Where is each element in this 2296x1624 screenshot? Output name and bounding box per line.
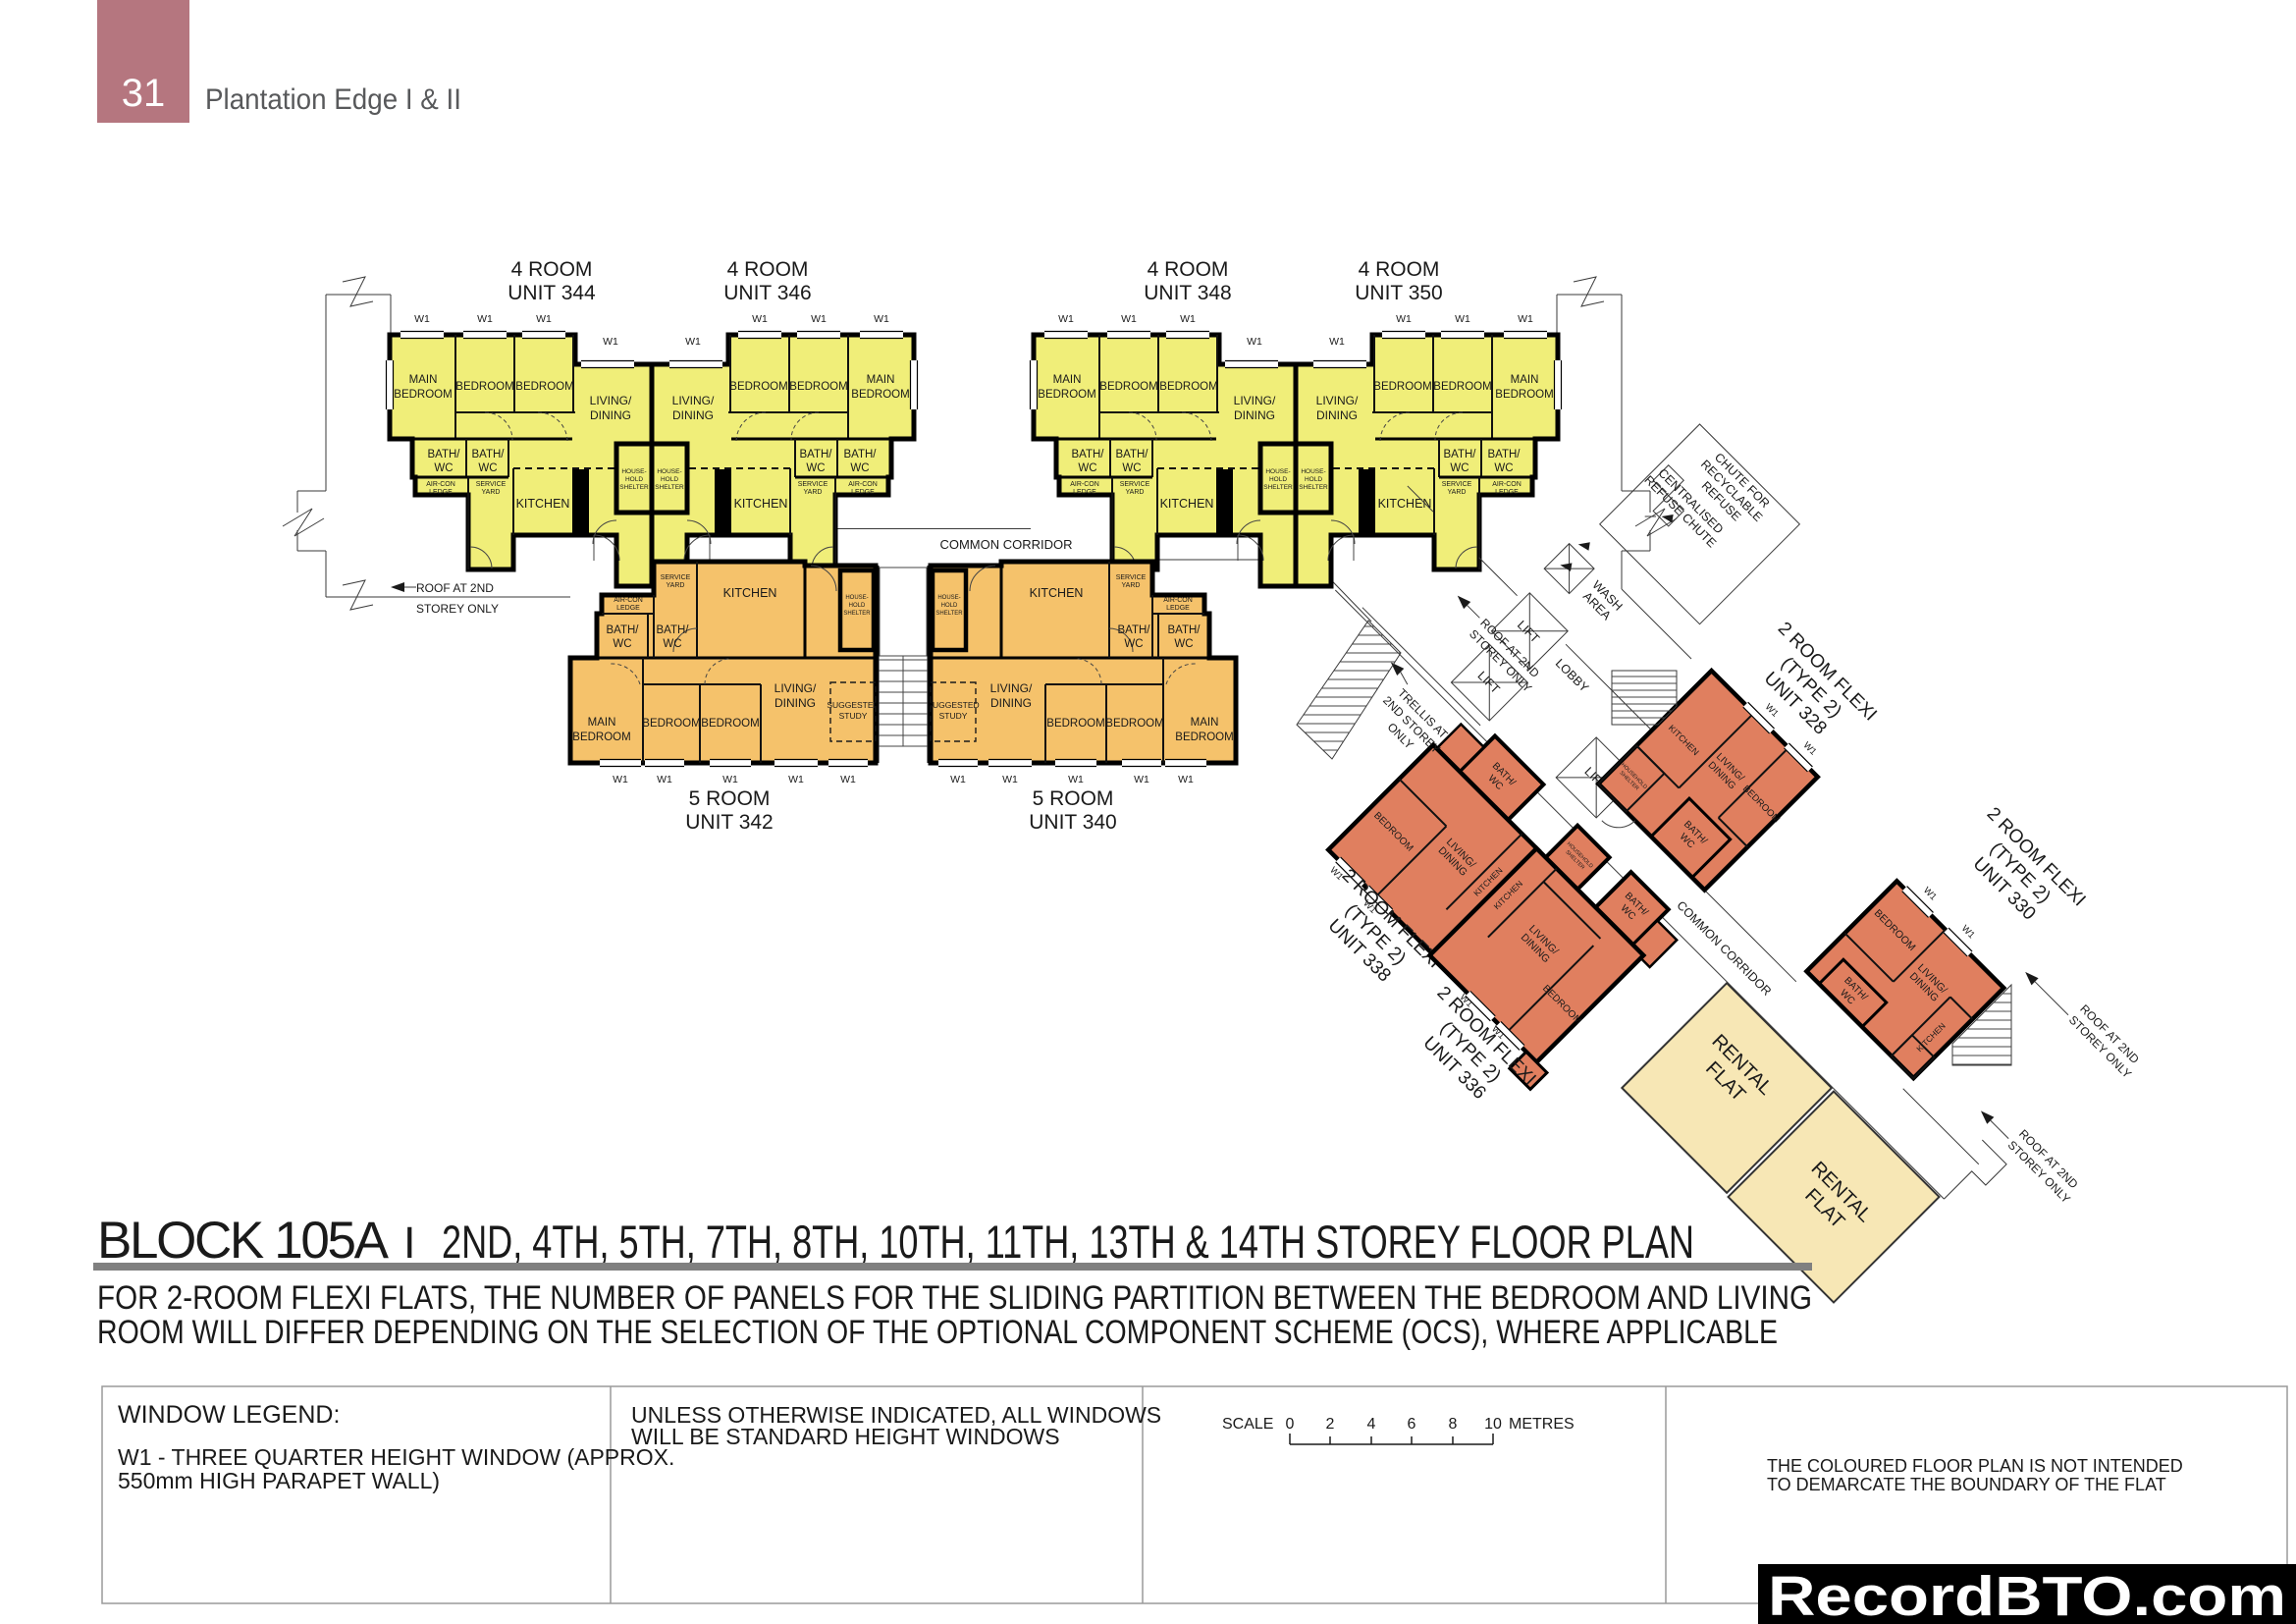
svg-text:5 ROOM: 5 ROOM	[689, 787, 771, 810]
svg-text:SERVICE: SERVICE	[476, 481, 507, 488]
svg-text:MAIN: MAIN	[409, 374, 438, 386]
svg-text:WC: WC	[806, 462, 825, 474]
svg-text:LIVING/: LIVING/	[990, 681, 1033, 695]
svg-text:WC: WC	[478, 462, 497, 474]
svg-text:BATH/: BATH/	[606, 624, 639, 636]
svg-text:BEDROOM: BEDROOM	[515, 381, 573, 393]
svg-text:W1: W1	[811, 313, 827, 325]
svg-text:KITCHEN: KITCHEN	[1160, 497, 1214, 511]
svg-text:W1: W1	[1247, 336, 1262, 348]
svg-text:BATH/: BATH/	[1487, 449, 1521, 460]
svg-text:I: I	[403, 1218, 416, 1268]
svg-text:DINING: DINING	[590, 408, 631, 422]
svg-text:WILL BE STANDARD HEIGHT WINDOW: WILL BE STANDARD HEIGHT WINDOWS	[631, 1424, 1060, 1449]
svg-text:4 ROOM: 4 ROOM	[511, 258, 593, 281]
svg-text:YARD: YARD	[804, 489, 823, 496]
svg-text:KITCHEN: KITCHEN	[516, 497, 570, 511]
svg-text:HOUSE-: HOUSE-	[937, 595, 960, 601]
svg-text:W1: W1	[1396, 313, 1412, 325]
svg-text:SUGGESTED: SUGGESTED	[927, 700, 979, 710]
svg-text:BEDROOM: BEDROOM	[1373, 381, 1431, 393]
svg-text:LEDGE: LEDGE	[429, 489, 453, 496]
svg-text:STOREY ONLY: STOREY ONLY	[416, 602, 499, 616]
svg-text:MAIN: MAIN	[1053, 374, 1082, 386]
svg-text:W1: W1	[536, 313, 552, 325]
svg-text:DINING: DINING	[1234, 408, 1275, 422]
svg-text:W1: W1	[840, 774, 856, 785]
svg-text:KITCHEN: KITCHEN	[1378, 497, 1432, 511]
svg-text:W1: W1	[1455, 313, 1470, 325]
svg-text:KITCHEN: KITCHEN	[723, 586, 777, 600]
svg-text:WC: WC	[1174, 638, 1193, 650]
svg-text:RecordBTO.com: RecordBTO.com	[1768, 1565, 2286, 1624]
svg-text:LEDGE: LEDGE	[1495, 489, 1519, 496]
svg-text:W1: W1	[414, 313, 430, 325]
svg-text:THE COLOURED FLOOR PLAN IS NOT: THE COLOURED FLOOR PLAN IS NOT INTENDED	[1767, 1456, 2183, 1476]
svg-text:WC: WC	[1450, 462, 1468, 474]
svg-text:SERVICE: SERVICE	[798, 481, 828, 488]
svg-text:W1: W1	[1329, 336, 1345, 348]
svg-text:DINING: DINING	[990, 696, 1032, 710]
svg-text:ROOM WILL DIFFER DEPENDING ON: ROOM WILL DIFFER DEPENDING ON THE SELECT…	[97, 1314, 1778, 1351]
svg-text:WC: WC	[613, 638, 631, 650]
svg-text:AIR-CON: AIR-CON	[1070, 481, 1099, 488]
svg-text:HOLD: HOLD	[1269, 476, 1287, 483]
svg-text:WC: WC	[1494, 462, 1513, 474]
svg-text:HOUSE-: HOUSE-	[1265, 468, 1290, 475]
svg-text:LEDGE: LEDGE	[1166, 605, 1190, 612]
svg-text:WC: WC	[663, 638, 681, 650]
svg-text:SHELTER: SHELTER	[1299, 484, 1328, 491]
svg-text:UNIT 346: UNIT 346	[723, 282, 812, 304]
svg-text:W1 - THREE QUARTER HEIGHT WI: W1 - THREE QUARTER HEIGHT WINDOW (APPROX…	[118, 1444, 674, 1470]
svg-text:SERVICE: SERVICE	[1120, 481, 1150, 488]
svg-text:UNIT 344: UNIT 344	[507, 282, 596, 304]
svg-text:HOLD: HOLD	[625, 476, 643, 483]
svg-text:AIR-CON: AIR-CON	[426, 481, 455, 488]
svg-text:FOR 2-ROOM FLEXI FLATS, THE NU: FOR 2-ROOM FLEXI FLATS, THE NUMBER OF PA…	[97, 1279, 1812, 1317]
svg-text:BEDROOM: BEDROOM	[789, 381, 847, 393]
svg-text:W1: W1	[1068, 774, 1084, 785]
svg-text:BEDROOM: BEDROOM	[729, 381, 787, 393]
svg-text:W1: W1	[788, 774, 804, 785]
svg-text:BEDROOM: BEDROOM	[1105, 718, 1163, 730]
svg-text:BLOCK 105A: BLOCK 105A	[97, 1212, 390, 1270]
svg-text:WC: WC	[1124, 638, 1143, 650]
svg-text:BEDROOM: BEDROOM	[851, 389, 909, 401]
svg-text:SHELTER: SHELTER	[1263, 484, 1293, 491]
svg-text:5 ROOM: 5 ROOM	[1033, 787, 1114, 810]
svg-text:W1: W1	[477, 313, 493, 325]
svg-text:LIVING/: LIVING/	[1316, 394, 1359, 407]
svg-text:ROOF AT 2ND: ROOF AT 2ND	[416, 581, 494, 595]
svg-text:YARD: YARD	[1122, 582, 1141, 589]
svg-text:DINING: DINING	[672, 408, 714, 422]
svg-text:W1: W1	[874, 313, 889, 325]
svg-text:BATH/: BATH/	[1071, 449, 1104, 460]
svg-text:10: 10	[1484, 1416, 1502, 1433]
svg-text:STUDY: STUDY	[939, 711, 968, 721]
svg-text:W1: W1	[613, 774, 628, 785]
svg-text:BEDROOM: BEDROOM	[1433, 381, 1491, 393]
svg-text:W1: W1	[722, 774, 738, 785]
svg-text:Plantation Edge I & II: Plantation Edge I & II	[205, 83, 461, 116]
svg-text:W1: W1	[1178, 774, 1194, 785]
svg-text:TO DEMARCATE THE BOUNDARY OF T: TO DEMARCATE THE BOUNDARY OF THE FLAT	[1767, 1475, 2166, 1494]
svg-text:HOLD: HOLD	[661, 476, 678, 483]
svg-text:WC: WC	[850, 462, 869, 474]
svg-text:BATH/: BATH/	[1443, 449, 1476, 460]
svg-text:4 ROOM: 4 ROOM	[1148, 258, 1229, 281]
svg-text:DINING: DINING	[1316, 408, 1358, 422]
svg-text:BEDROOM: BEDROOM	[1159, 381, 1217, 393]
svg-text:W1: W1	[1058, 313, 1074, 325]
svg-text:SHELTER: SHELTER	[655, 484, 684, 491]
svg-text:HOLD: HOLD	[849, 603, 866, 609]
svg-text:2: 2	[1326, 1416, 1335, 1433]
svg-text:BEDROOM: BEDROOM	[1099, 381, 1157, 393]
svg-text:MAIN: MAIN	[588, 717, 616, 729]
svg-text:BEDROOM: BEDROOM	[1495, 389, 1553, 401]
svg-text:SCALE: SCALE	[1222, 1416, 1273, 1433]
svg-text:MAIN: MAIN	[1191, 717, 1219, 729]
svg-text:BATH/: BATH/	[1117, 624, 1150, 636]
svg-text:4: 4	[1367, 1416, 1376, 1433]
svg-text:31: 31	[122, 72, 166, 115]
svg-text:SERVICE: SERVICE	[661, 574, 691, 581]
svg-text:AIR-CON: AIR-CON	[1492, 481, 1522, 488]
svg-text:AIR-CON: AIR-CON	[614, 597, 643, 604]
svg-text:LEDGE: LEDGE	[616, 605, 640, 612]
svg-text:WC: WC	[1078, 462, 1096, 474]
svg-text:LIVING/: LIVING/	[1234, 394, 1276, 407]
svg-text:YARD: YARD	[667, 582, 685, 589]
svg-text:4 ROOM: 4 ROOM	[1359, 258, 1440, 281]
svg-text:W1: W1	[1134, 774, 1149, 785]
svg-text:WINDOW LEGEND:: WINDOW LEGEND:	[118, 1401, 340, 1429]
svg-text:W1: W1	[950, 774, 966, 785]
svg-text:AIR-CON: AIR-CON	[848, 481, 878, 488]
svg-text:4 ROOM: 4 ROOM	[727, 258, 809, 281]
svg-text:BATH/: BATH/	[1167, 624, 1201, 636]
svg-text:SERVICE: SERVICE	[1442, 481, 1472, 488]
svg-text:BATH/: BATH/	[843, 449, 877, 460]
svg-text:W1: W1	[1121, 313, 1137, 325]
svg-text:HOUSE-: HOUSE-	[657, 468, 681, 475]
svg-text:8: 8	[1449, 1416, 1458, 1433]
svg-text:DINING: DINING	[774, 696, 816, 710]
svg-text:0: 0	[1286, 1416, 1295, 1433]
svg-text:W1: W1	[1180, 313, 1196, 325]
svg-text:BEDROOM: BEDROOM	[1175, 731, 1233, 743]
svg-text:2ND, 4TH, 5TH, 7TH, 8TH, 10TH,: 2ND, 4TH, 5TH, 7TH, 8TH, 10TH, 11TH, 13T…	[442, 1216, 1694, 1268]
svg-text:COMMON CORRIDOR: COMMON CORRIDOR	[939, 537, 1072, 552]
svg-text:YARD: YARD	[1448, 489, 1467, 496]
svg-text:UNIT 348: UNIT 348	[1144, 282, 1232, 304]
svg-text:KITCHEN: KITCHEN	[734, 497, 788, 511]
svg-text:LIVING/: LIVING/	[774, 681, 817, 695]
svg-text:YARD: YARD	[482, 489, 501, 496]
svg-text:HOUSE-: HOUSE-	[1301, 468, 1325, 475]
svg-text:HOUSE-: HOUSE-	[621, 468, 646, 475]
svg-text:METRES: METRES	[1509, 1416, 1575, 1433]
svg-text:W1: W1	[752, 313, 768, 325]
svg-text:BATH/: BATH/	[427, 449, 460, 460]
svg-text:BEDROOM: BEDROOM	[572, 731, 630, 743]
svg-text:WC: WC	[434, 462, 453, 474]
svg-text:UNIT 342: UNIT 342	[685, 811, 774, 834]
svg-text:LIVING/: LIVING/	[672, 394, 715, 407]
svg-text:W1: W1	[1518, 313, 1533, 325]
svg-text:LIVING/: LIVING/	[590, 394, 632, 407]
svg-text:SUGGESTED: SUGGESTED	[827, 700, 879, 710]
svg-text:MAIN: MAIN	[867, 374, 895, 386]
svg-text:BATH/: BATH/	[799, 449, 832, 460]
svg-text:UNIT 350: UNIT 350	[1355, 282, 1443, 304]
svg-text:BEDROOM: BEDROOM	[1046, 718, 1104, 730]
svg-text:LEDGE: LEDGE	[851, 489, 875, 496]
svg-text:BATH/: BATH/	[1115, 449, 1148, 460]
svg-text:550mm HIGH PARAPET WALL): 550mm HIGH PARAPET WALL)	[118, 1468, 440, 1493]
svg-text:SERVICE: SERVICE	[1116, 574, 1147, 581]
svg-text:HOLD: HOLD	[941, 603, 958, 609]
svg-text:6: 6	[1408, 1416, 1416, 1433]
svg-text:BEDROOM: BEDROOM	[642, 718, 700, 730]
svg-text:LEDGE: LEDGE	[1073, 489, 1096, 496]
svg-text:HOUSE-: HOUSE-	[845, 595, 868, 601]
svg-text:WC: WC	[1122, 462, 1141, 474]
svg-text:W1: W1	[1002, 774, 1018, 785]
svg-text:W1: W1	[603, 336, 618, 348]
svg-text:SHELTER: SHELTER	[935, 611, 963, 617]
svg-text:SHELTER: SHELTER	[619, 484, 649, 491]
svg-text:MAIN: MAIN	[1511, 374, 1539, 386]
svg-text:W1: W1	[685, 336, 701, 348]
svg-text:W1: W1	[657, 774, 672, 785]
svg-text:AIR-CON: AIR-CON	[1163, 597, 1193, 604]
svg-text:STUDY: STUDY	[839, 711, 868, 721]
svg-text:YARD: YARD	[1126, 489, 1145, 496]
svg-text:HOLD: HOLD	[1305, 476, 1322, 483]
svg-text:BEDROOM: BEDROOM	[394, 389, 452, 401]
svg-text:BEDROOM: BEDROOM	[1038, 389, 1095, 401]
svg-text:KITCHEN: KITCHEN	[1030, 586, 1084, 600]
svg-text:BATH/: BATH/	[656, 624, 689, 636]
svg-text:BEDROOM: BEDROOM	[455, 381, 513, 393]
svg-text:BEDROOM: BEDROOM	[701, 718, 759, 730]
svg-text:UNIT 340: UNIT 340	[1029, 811, 1117, 834]
svg-text:BATH/: BATH/	[471, 449, 505, 460]
svg-text:SHELTER: SHELTER	[843, 611, 871, 617]
